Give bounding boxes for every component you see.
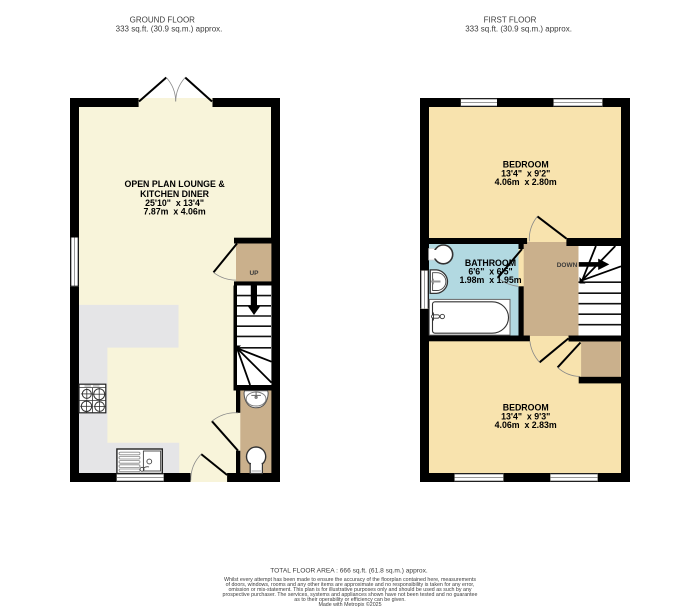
svg-text:TOTAL FLOOR AREA : 666 sq.ft.: TOTAL FLOOR AREA : 666 sq.ft. (61.8 sq.m… — [270, 568, 428, 575]
svg-text:OPEN PLAN LOUNGE &: OPEN PLAN LOUNGE & — [124, 179, 225, 189]
svg-text:FIRST FLOOR: FIRST FLOOR — [484, 16, 537, 25]
svg-text:GROUND FLOOR: GROUND FLOOR — [130, 16, 196, 25]
svg-text:7.87m x 4.06m: 7.87m x 4.06m — [144, 206, 206, 216]
svg-text:DOWN: DOWN — [557, 262, 578, 269]
svg-text:4.06m x 2.80m: 4.06m x 2.80m — [495, 177, 557, 187]
svg-text:333 sq.ft. (30.9 sq.m.) approx: 333 sq.ft. (30.9 sq.m.) approx. — [465, 25, 572, 34]
svg-text:UP: UP — [249, 270, 259, 277]
svg-text:333 sq.ft. (30.9 sq.m.) approx: 333 sq.ft. (30.9 sq.m.) approx. — [116, 25, 223, 34]
svg-text:Made with Metropix ©2025: Made with Metropix ©2025 — [318, 601, 381, 608]
svg-text:4.06m x 2.83m: 4.06m x 2.83m — [495, 420, 557, 430]
svg-text:1.98m x 1.95m: 1.98m x 1.95m — [459, 275, 521, 285]
